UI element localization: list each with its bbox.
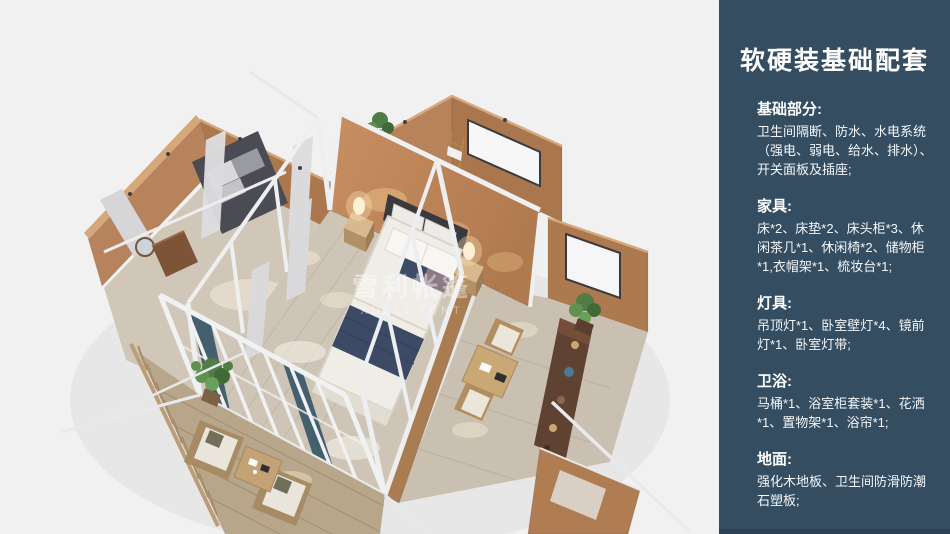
section-bathroom: 卫浴: 马桶*1、浴室柜套装*1、花洒*1、置物架*1、浴帘*1;: [757, 370, 936, 432]
section-lighting-heading: 灯具:: [757, 292, 936, 313]
section-flooring-heading: 地面:: [757, 448, 936, 469]
section-furniture-body: 床*2、床垫*2、床头柜*3、休闲茶几*1、休闲椅*2、储物柜*1,衣帽架*1、…: [757, 219, 936, 276]
slide: 雪利帐篷 XUELI TENT 软硬装基础配套 基础部分: 卫生间隔断、防水、水…: [0, 0, 950, 534]
floorplan-3d-render: 雪利帐篷 XUELI TENT: [0, 0, 719, 534]
section-furniture: 家具: 床*2、床垫*2、床头柜*3、休闲茶几*1、休闲椅*2、储物柜*1,衣帽…: [757, 195, 936, 276]
section-lighting-body: 吊顶灯*1、卧室壁灯*4、镜前灯*1、卧室灯带;: [757, 316, 936, 354]
watermark: 雪利帐篷 XUELI TENT: [352, 272, 472, 317]
section-basics-body: 卫生间隔断、防水、水电系统（强电、弱电、给水、排水）、开关面板及插座;: [757, 122, 936, 179]
section-flooring: 地面: 强化木地板、卫生间防滑防潮石塑板;: [757, 448, 936, 510]
nightstand: [344, 191, 374, 252]
wall-lamp-glow: [487, 252, 523, 272]
watermark-cn: 雪利帐篷: [352, 272, 472, 302]
round-mirror: [136, 238, 154, 256]
watermark-en: XUELI TENT: [360, 305, 463, 317]
section-furniture-heading: 家具:: [757, 195, 936, 216]
info-panel: 软硬装基础配套 基础部分: 卫生间隔断、防水、水电系统（强电、弱电、给水、排水）…: [719, 0, 950, 534]
panel-title: 软硬装基础配套: [740, 46, 936, 76]
section-basics: 基础部分: 卫生间隔断、防水、水电系统（强电、弱电、给水、排水）、开关面板及插座…: [757, 98, 936, 179]
section-bathroom-heading: 卫浴:: [757, 370, 936, 391]
section-basics-heading: 基础部分:: [757, 98, 936, 119]
section-flooring-body: 强化木地板、卫生间防滑防潮石塑板;: [757, 472, 936, 510]
section-bathroom-body: 马桶*1、浴室柜套装*1、花洒*1、置物架*1、浴帘*1;: [757, 394, 936, 432]
section-lighting: 灯具: 吊顶灯*1、卧室壁灯*4、镜前灯*1、卧室灯带;: [757, 292, 936, 354]
render-stage: 雪利帐篷 XUELI TENT: [0, 0, 719, 534]
